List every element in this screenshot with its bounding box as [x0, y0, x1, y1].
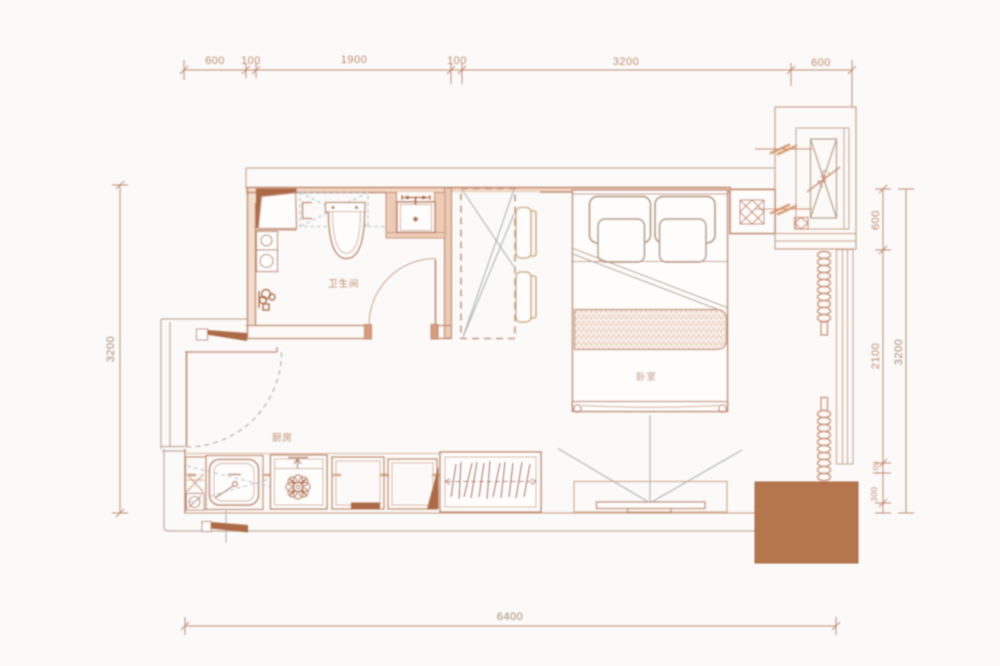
svg-text:3200: 3200 [105, 336, 117, 362]
svg-text:600: 600 [870, 210, 882, 230]
svg-text:100: 100 [241, 55, 261, 67]
svg-text:100: 100 [871, 461, 880, 475]
svg-text:600: 600 [205, 55, 225, 67]
svg-text:2100: 2100 [870, 343, 882, 369]
svg-text:1900: 1900 [341, 54, 367, 66]
svg-text:3200: 3200 [613, 56, 639, 68]
svg-text:6400: 6400 [497, 611, 523, 623]
svg-text:卫生间: 卫生间 [328, 278, 360, 290]
svg-text:3200: 3200 [893, 339, 905, 365]
svg-text:卧室: 卧室 [636, 371, 657, 383]
svg-text:厨房: 厨房 [272, 432, 293, 444]
svg-text:600: 600 [811, 57, 831, 69]
svg-text:300: 300 [870, 487, 879, 502]
svg-text:100: 100 [447, 55, 467, 67]
